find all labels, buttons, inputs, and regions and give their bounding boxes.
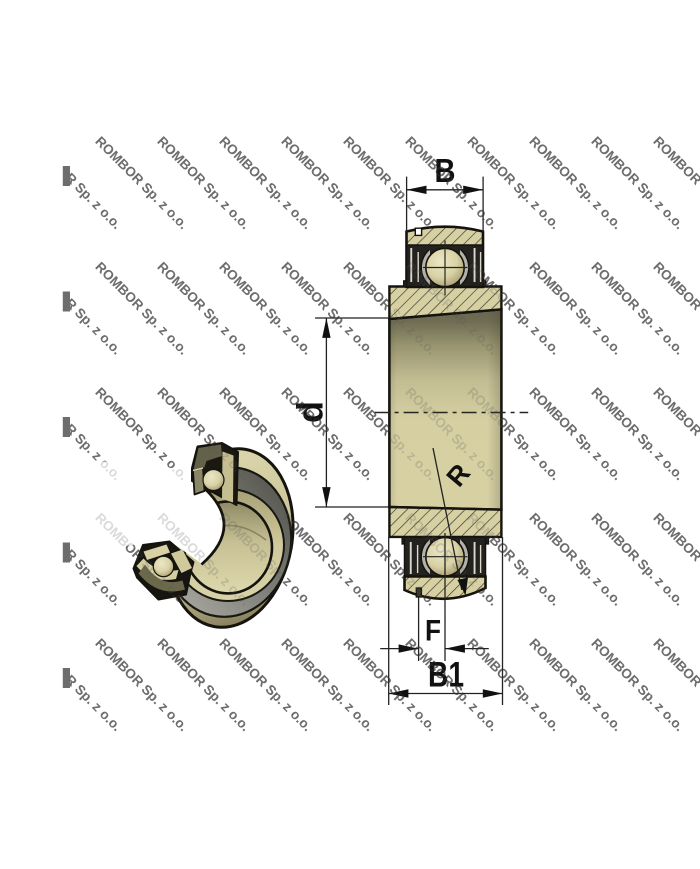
svg-text:F: F: [425, 615, 441, 648]
